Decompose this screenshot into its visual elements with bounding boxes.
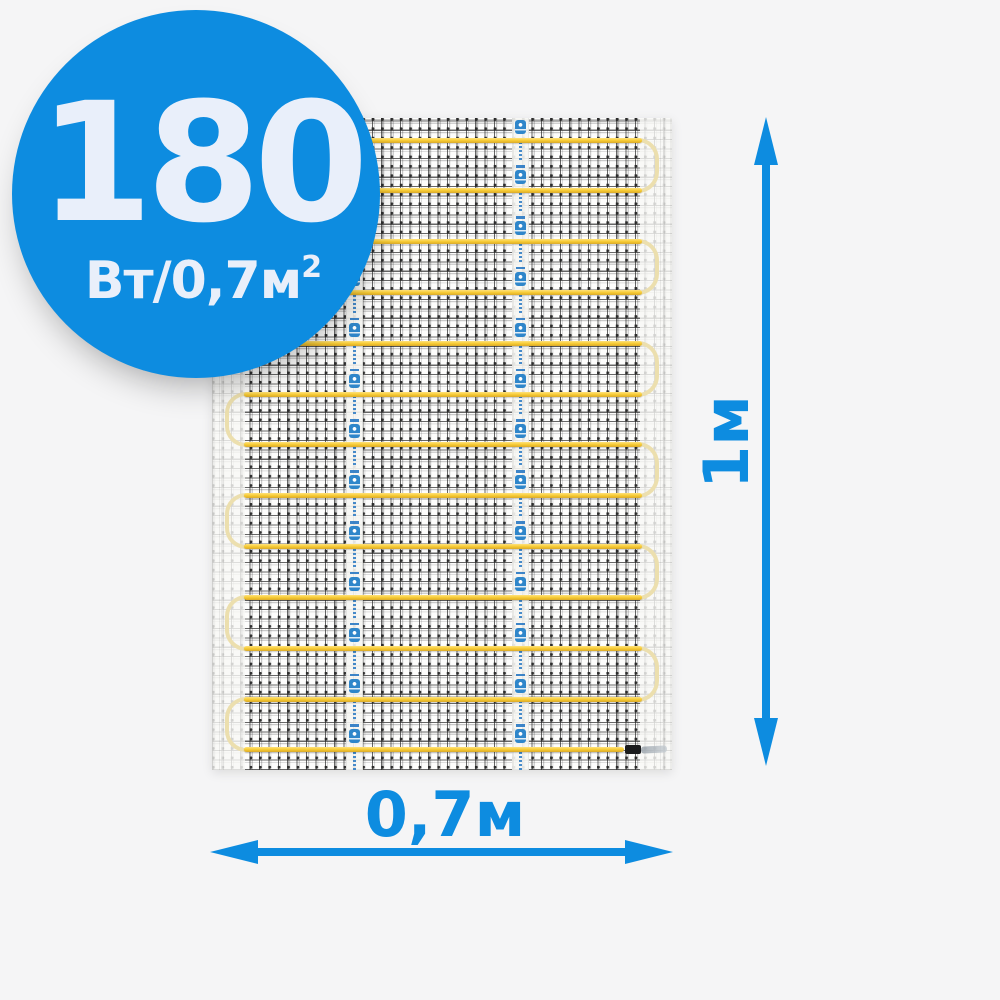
tape-text-marking: [519, 244, 522, 264]
tape-mark: [512, 599, 529, 645]
tape-mark: [346, 395, 363, 441]
heating-cable-row: [244, 646, 642, 651]
brand-logo-icon: [349, 475, 360, 489]
tape-text-marking: [353, 600, 356, 620]
tape-dash: [516, 674, 525, 677]
heating-cable-row: [244, 544, 642, 549]
tape-dash: [350, 623, 359, 626]
arrow-down-icon: [754, 718, 778, 766]
brand-logo-icon: [515, 272, 526, 286]
tape-dash: [350, 724, 359, 727]
brand-logo-icon: [349, 424, 360, 438]
power-unit: Вт/0,7м2: [85, 255, 321, 307]
tape-text-marking: [353, 498, 356, 518]
brand-logo-icon: [515, 221, 526, 235]
tape-mark: [512, 497, 529, 543]
brand-logo-icon: [349, 729, 360, 743]
tape-dash: [516, 572, 525, 575]
tape-mark: [512, 395, 529, 441]
brand-logo-icon: [515, 679, 526, 693]
brand-logo-icon: [349, 323, 360, 337]
tape-text-marking: [519, 295, 522, 315]
power-value: 180: [38, 81, 361, 233]
brand-logo-icon: [515, 628, 526, 642]
tape-dash: [350, 318, 359, 321]
tape-mark: [512, 751, 529, 770]
brand-logo-icon: [349, 679, 360, 693]
tape-mark: [512, 141, 529, 187]
heating-cable-row: [244, 697, 642, 702]
power-unit-superscript: 2: [301, 250, 321, 285]
tape-mark: [346, 650, 363, 696]
tape-mark: [346, 497, 363, 543]
tape-mark: [512, 243, 529, 289]
height-dimension-label: 1м: [696, 395, 758, 489]
heating-cable-row: [244, 595, 642, 600]
tape-text-marking: [519, 396, 522, 416]
brand-logo-icon: [515, 323, 526, 337]
tape-text-marking: [353, 295, 356, 315]
tape-dash: [350, 674, 359, 677]
tape-text-marking: [353, 346, 356, 366]
tape-mark: [512, 700, 529, 746]
tape-mark: [512, 548, 529, 594]
tape-dash: [516, 419, 525, 422]
tape-text-marking: [519, 752, 522, 770]
tape-dash: [516, 369, 525, 372]
tape-text-marking: [519, 142, 522, 162]
tape-text-marking: [353, 549, 356, 569]
tape-dash: [350, 470, 359, 473]
tape-dash: [516, 216, 525, 219]
heating-cable-loop: [225, 595, 246, 651]
heating-cable-row: [244, 442, 642, 447]
tape-text-marking: [519, 549, 522, 569]
tape-mark: [512, 118, 529, 137]
tape-text-marking: [353, 447, 356, 467]
tape-dash: [350, 572, 359, 575]
brand-logo-icon: [515, 475, 526, 489]
tape-dash: [516, 318, 525, 321]
tape-text-marking: [519, 193, 522, 213]
tape-dash: [350, 521, 359, 524]
tape-text-marking: [519, 600, 522, 620]
tape-mark: [512, 650, 529, 696]
brand-logo-icon: [349, 628, 360, 642]
tape-text-marking: [353, 651, 356, 671]
brand-logo-icon: [349, 526, 360, 540]
height-dimension-arrow: [762, 160, 770, 722]
brand-logo-icon: [515, 577, 526, 591]
tape-dash: [350, 369, 359, 372]
brand-logo-icon: [515, 729, 526, 743]
brand-logo-icon: [349, 374, 360, 388]
product-image: 180 Вт/0,7м2 1м 0,7м: [0, 0, 1000, 1000]
tape-mark: [512, 192, 529, 238]
tape-dash: [350, 419, 359, 422]
brand-logo-icon: [515, 526, 526, 540]
tape-dash: [516, 521, 525, 524]
cable-end-coupling: [625, 745, 641, 754]
tape-mark: [346, 548, 363, 594]
tape-dash: [516, 165, 525, 168]
mat-right-selvage: [660, 118, 665, 770]
tape-text-marking: [353, 752, 356, 770]
brand-logo-icon: [515, 120, 526, 134]
tape-mark: [346, 294, 363, 340]
tape-text-marking: [353, 396, 356, 416]
brand-logo-icon: [515, 374, 526, 388]
tape-text-marking: [519, 447, 522, 467]
power-badge: 180 Вт/0,7м2: [12, 10, 380, 378]
brand-logo-icon: [349, 577, 360, 591]
tape-mark: [346, 700, 363, 746]
tape-dash: [516, 724, 525, 727]
cold-lead-wire: [641, 745, 667, 753]
width-dimension-label: 0,7м: [365, 784, 526, 846]
tape-text-marking: [353, 701, 356, 721]
tape-mark: [512, 446, 529, 492]
tape-mark: [346, 345, 363, 391]
brand-logo-icon: [515, 170, 526, 184]
heating-cable-row: [244, 747, 624, 752]
tape-mark: [346, 599, 363, 645]
tape-text-marking: [519, 701, 522, 721]
tape-text-marking: [519, 346, 522, 366]
tape-dash: [516, 470, 525, 473]
tape-mark: [512, 294, 529, 340]
tape-mark: [512, 345, 529, 391]
heating-cable-row: [244, 392, 642, 397]
tape-mark: [346, 446, 363, 492]
heating-cable-row: [244, 493, 642, 498]
arrow-left-icon: [210, 840, 258, 864]
tape-text-marking: [519, 498, 522, 518]
arrow-right-icon: [625, 840, 673, 864]
power-unit-text: Вт/0,7м: [85, 251, 301, 311]
tape-mark: [346, 751, 363, 770]
tape-text-marking: [519, 651, 522, 671]
arrow-up-icon: [754, 117, 778, 165]
brand-logo-icon: [515, 424, 526, 438]
tape-dash: [516, 623, 525, 626]
tape-dash: [516, 267, 525, 270]
